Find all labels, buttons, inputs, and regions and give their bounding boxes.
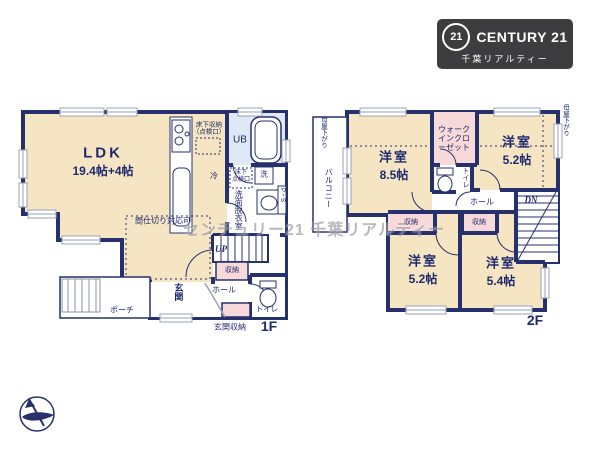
century21-logo: 21 CENTURY 21 千葉リアルティー [437, 19, 573, 69]
label-stairs-up: UP [215, 244, 227, 254]
room-label-hall-2f: ホール [470, 197, 494, 206]
room-label-bedroom2: 洋室 [502, 136, 532, 151]
floor1-porch [60, 277, 150, 318]
room-label-bath: UB [233, 134, 247, 146]
room-label-bedroom3: 洋室 [408, 255, 438, 270]
floorplan-image: LDK 19.4帖+4帖 床下収納 （点検口） UB 冷 床下 点検口 洗 洗面… [0, 0, 600, 450]
label-fridge: 冷 [210, 171, 218, 180]
room-label-toilet-2f: トイレ [461, 167, 469, 188]
room-label-toilet-1f: トイレ [256, 306, 279, 315]
brand-name: CENTURY 21 [476, 29, 567, 45]
label-eaves-right: 母屋下がり [561, 104, 568, 137]
label-stairs-down: DN [525, 195, 538, 205]
room-size-bedroom3: 5.2帖 [409, 273, 438, 287]
entrance-storage-box [222, 303, 250, 317]
north-arrow-icon [20, 397, 54, 431]
room-label-entrance: 玄関 [173, 283, 183, 301]
floor2-label: 2F [527, 312, 543, 328]
c21-seal-icon: 21 [442, 23, 470, 51]
floor1-label: 1F [261, 318, 277, 334]
floor2-fixtures [437, 168, 453, 192]
label-floor-storage: 床下収納 （点検口） [193, 122, 226, 137]
label-stair-closet: 収納 [225, 267, 239, 275]
room-label-wic: ウォークインクローゼット [436, 125, 472, 153]
label-floor-hatch: 床下 点検口 [232, 170, 250, 184]
room-size-bedroom4: 5.4帖 [487, 275, 516, 289]
room-label-ldk: LDK [83, 144, 123, 161]
brand-subtitle: 千葉リアルティー [461, 52, 548, 65]
room-label-bedroom4: 洋室 [486, 257, 516, 272]
label-entrance-storage: 玄関収納 [214, 322, 246, 331]
label-eaves-left: 母屋下がり [319, 116, 326, 149]
label-closet-2f-right: 収納 [472, 219, 486, 227]
toilet-2f-icon [437, 168, 453, 192]
room-label-balcony: バルコニー [324, 168, 333, 208]
watermark-text: センチュリー21 千葉リアルティー [183, 216, 445, 240]
room-label-bedroom1: 洋室 [379, 151, 409, 166]
room-size-ldk: 19.4帖+4帖 [72, 165, 133, 179]
label-washer: 洗 [260, 171, 268, 180]
room-size-bedroom2: 5.2帖 [503, 154, 532, 168]
room-label-hall-1f: ホール [212, 285, 236, 294]
room-size-bedroom1: 8.5帖 [380, 169, 409, 183]
toilet-icon [260, 281, 276, 307]
label-pipe-space: P・S [278, 188, 285, 202]
room-label-porch: ポーチ [110, 305, 134, 314]
